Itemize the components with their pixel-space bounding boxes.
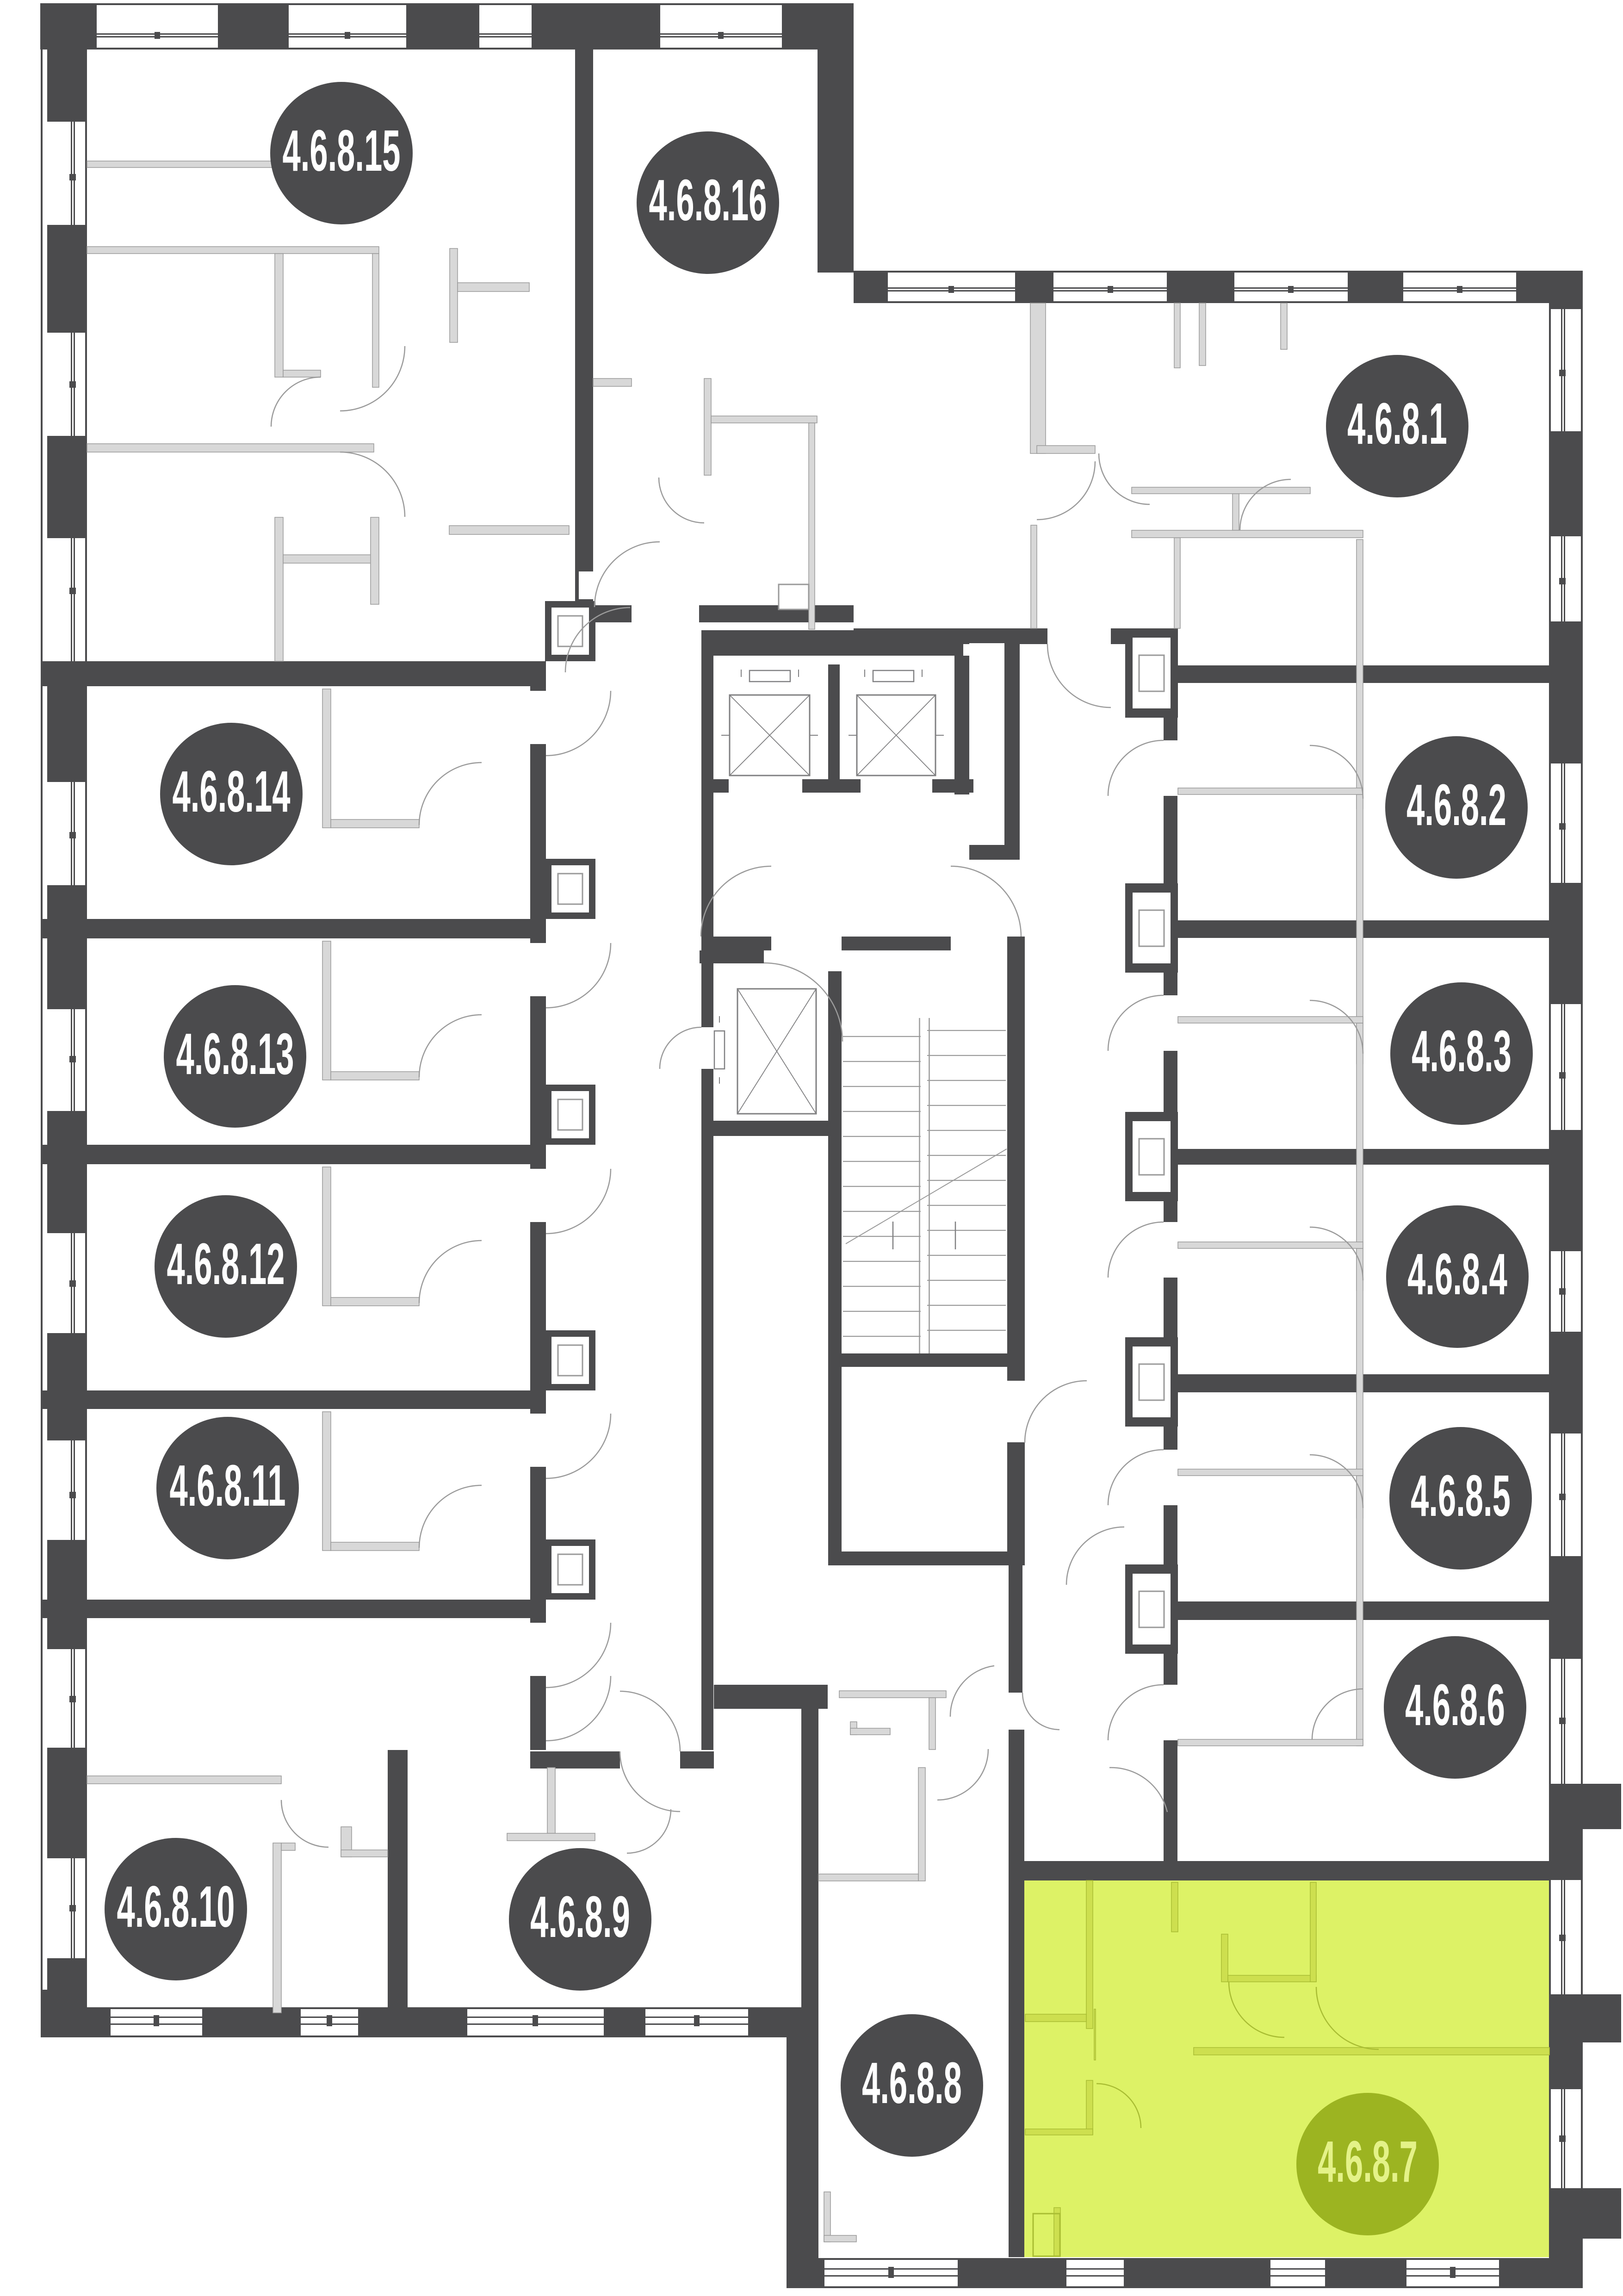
svg-text:4.6.8.16: 4.6.8.16 xyxy=(649,168,767,233)
svg-text:4.6.8.6: 4.6.8.6 xyxy=(1405,1672,1505,1738)
svg-text:4.6.8.3: 4.6.8.3 xyxy=(1412,1018,1511,1084)
svg-text:4.6.8.4: 4.6.8.4 xyxy=(1407,1241,1507,1307)
svg-text:4.6.8.15: 4.6.8.15 xyxy=(282,118,400,183)
svg-text:4.6.8.5: 4.6.8.5 xyxy=(1411,1463,1511,1528)
svg-text:4.6.8.2: 4.6.8.2 xyxy=(1406,772,1506,838)
svg-text:4.6.8.10: 4.6.8.10 xyxy=(117,1874,235,1939)
svg-text:4.6.8.13: 4.6.8.13 xyxy=(176,1021,294,1086)
svg-text:4.6.8.8: 4.6.8.8 xyxy=(862,2050,962,2116)
svg-text:4.6.8.1: 4.6.8.1 xyxy=(1347,391,1447,456)
svg-text:4.6.8.7: 4.6.8.7 xyxy=(1318,2129,1418,2194)
svg-text:4.6.8.9: 4.6.8.9 xyxy=(530,1884,630,1949)
svg-text:4.6.8.14: 4.6.8.14 xyxy=(172,759,290,824)
svg-text:4.6.8.11: 4.6.8.11 xyxy=(169,1453,285,1518)
svg-text:4.6.8.12: 4.6.8.12 xyxy=(167,1231,285,1297)
